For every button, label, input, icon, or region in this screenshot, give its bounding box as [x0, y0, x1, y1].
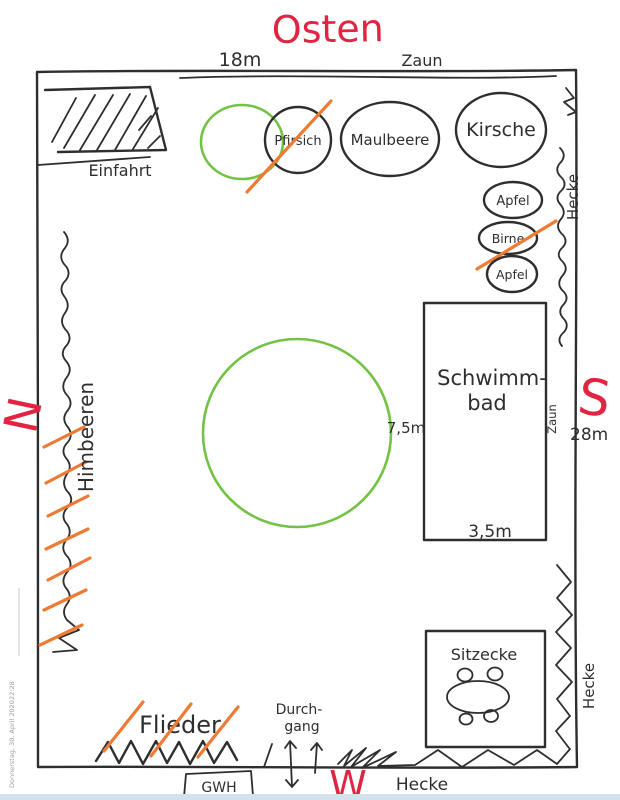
fence-top-label: Zaun: [401, 51, 442, 70]
right-height-label: 28m: [570, 425, 608, 445]
hedge-right-bottom-zigzag: [556, 565, 572, 748]
seating-chair: [460, 714, 473, 725]
fence-pool-label: Zaun: [545, 404, 559, 434]
page-bottom-strip: [0, 794, 620, 800]
lilac-label: Flieder: [139, 711, 221, 739]
note-page: Osten 18m Zaun Einfahrt Pfirsich Maulbee…: [0, 0, 620, 800]
seating-table: [447, 681, 509, 713]
driveway-hatching: [52, 94, 160, 150]
sidebar-time: 22:28: [8, 681, 16, 700]
compass-south-label: S: [575, 367, 615, 429]
apple-top-label: Apfel: [496, 194, 529, 209]
driveway-label: Einfahrt: [88, 161, 151, 180]
passage-label-line2: gang: [284, 719, 319, 735]
hedge-right-top-label: Hecke: [564, 174, 582, 220]
driveway-area: [38, 87, 166, 165]
passage-arrows: [264, 741, 322, 787]
pool-rect: [424, 303, 546, 540]
passage-double-arrow: [285, 741, 298, 787]
pear-strikethrough: [477, 221, 556, 269]
cherry-label: Kirsche: [466, 119, 536, 141]
compass-north-label: N: [0, 392, 53, 437]
hedge-right-bottom-label: Hecke: [580, 663, 598, 709]
apple-bottom-label: Apfel: [496, 267, 528, 282]
lawn-diameter-label: 7,5m: [387, 419, 425, 437]
hedge-corner-scribble: [564, 88, 576, 115]
lilac-zigzag: [96, 741, 237, 764]
garden-border-doubled-stroke: [180, 76, 556, 78]
pool-label-line2: bad: [467, 391, 507, 415]
hedge-bottom-zigzag: [338, 748, 570, 768]
sidebar-date: Donnerstag, 30. April 2020: [8, 700, 16, 788]
greenhouse-label: GWH: [201, 780, 236, 796]
compass-east-label: Osten: [271, 6, 384, 52]
passage-label-line1: Durch-: [276, 702, 323, 718]
mulberry-label: Maulbeere: [351, 131, 430, 149]
seating-chair: [488, 668, 503, 681]
pool-width-label: 3,5m: [468, 522, 512, 542]
sketch-canvas[interactable]: Osten 18m Zaun Einfahrt Pfirsich Maulbee…: [0, 0, 620, 800]
top-width-label: 18m: [219, 49, 262, 71]
hedge-bottom-label: Hecke: [396, 775, 448, 795]
raspberries-label: Himbeeren: [74, 382, 98, 492]
seating-label: Sitzecke: [451, 645, 517, 664]
seating-chair: [458, 669, 473, 682]
seating-table-and-chairs: [447, 668, 509, 725]
green-circle-large: [203, 339, 391, 527]
pool-label-line1: Schwimm-: [437, 366, 547, 390]
